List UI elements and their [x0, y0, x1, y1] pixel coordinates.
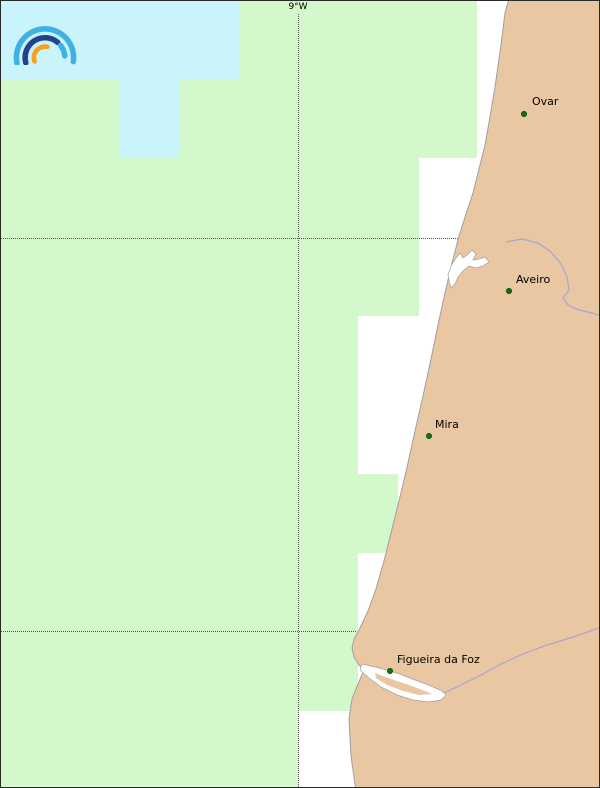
- city-dot: [506, 288, 512, 294]
- logo-middle-arc-tip: [61, 45, 65, 55]
- city-dot: [521, 111, 527, 117]
- city-label: Figueira da Foz: [397, 653, 480, 666]
- logo-inner-arc: [34, 47, 47, 62]
- city-label: Ovar: [532, 95, 558, 108]
- city-label: Aveiro: [516, 273, 550, 286]
- land-and-water-layer: [1, 1, 600, 788]
- city-label: Mira: [435, 418, 459, 431]
- logo-middle-arc: [25, 38, 58, 63]
- city-dot: [426, 433, 432, 439]
- rainbow-arcs-logo: [9, 17, 81, 65]
- map-canvas: 9°W OvarAveiroMiraFigueira da Foz: [0, 0, 600, 788]
- city-dot: [387, 668, 393, 674]
